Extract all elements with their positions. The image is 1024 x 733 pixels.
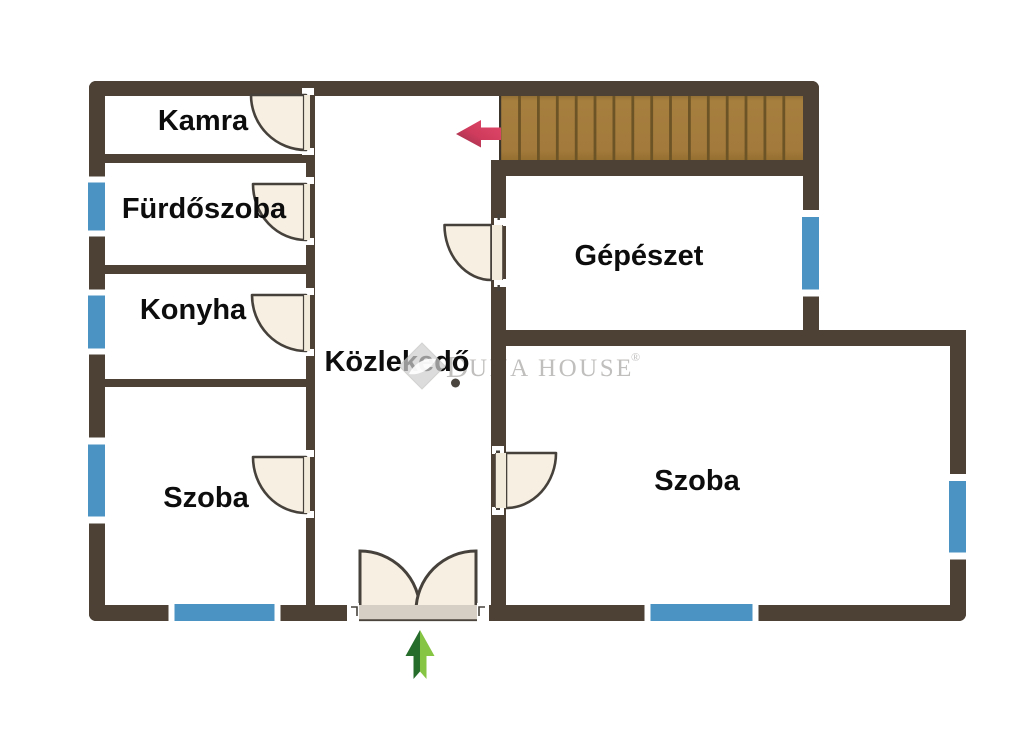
svg-text:Konyha: Konyha — [140, 294, 247, 326]
svg-text:Közlekedő: Közlekedő — [324, 346, 469, 378]
svg-text:Szoba: Szoba — [654, 465, 740, 497]
svg-text:Fürdőszoba: Fürdőszoba — [122, 193, 287, 225]
svg-text:Kamra: Kamra — [158, 105, 249, 137]
svg-text:Szoba: Szoba — [163, 482, 249, 514]
svg-text:®: ® — [631, 350, 640, 364]
svg-text:Gépészet: Gépészet — [575, 240, 704, 272]
